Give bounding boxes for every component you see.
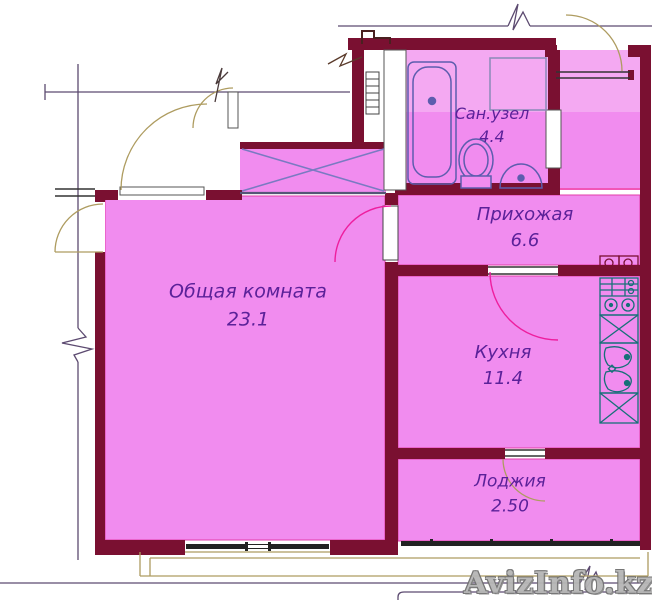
wall-living-bottom-right-pier (330, 540, 398, 555)
bathroom-name: Сан.узел (455, 104, 530, 123)
hallway-area: 6.6 (477, 228, 573, 254)
living-room-area: 23.1 (169, 306, 327, 334)
loggia-door-threshold (505, 450, 545, 456)
hallway-label: Прихожая 6.6 (477, 202, 573, 254)
wall-center-lower (385, 262, 398, 540)
break-mark-stair-door (215, 68, 228, 102)
wall-top (348, 38, 556, 50)
loggia-window (401, 541, 640, 546)
door-leaf-bathroom (546, 110, 561, 168)
door-arc-stair-small (193, 88, 233, 128)
basin-faucet-dot (518, 175, 524, 181)
duct-column (384, 50, 406, 190)
watermark-text: AvizInfo.kz (464, 566, 652, 600)
door-leaf-living-top (120, 187, 204, 195)
wall-kitchen-loggia-right (545, 448, 640, 459)
loggia-area: 2.50 (474, 494, 546, 519)
break-mark-left (62, 328, 92, 362)
vent-box-top-wall (240, 142, 386, 149)
bathroom-area: 4.4 (455, 125, 530, 148)
kitchen-label: Кухня 11.4 (475, 340, 532, 392)
wall-duct-left (352, 47, 364, 146)
living-room-fill (105, 196, 385, 540)
wall-center-upper (385, 193, 398, 205)
wall-kitchen-loggia-left (398, 448, 505, 459)
wall-hall-kitchen-left (392, 265, 488, 276)
hallway-name: Прихожая (477, 204, 573, 225)
bathtub-faucet-dot (429, 98, 436, 105)
wall-bathroom-right-upper (548, 50, 560, 112)
kitchen-door-threshold (488, 267, 558, 274)
opening-living-left (95, 202, 105, 252)
kitchen-name: Кухня (475, 342, 532, 363)
kitchen-area: 11.4 (475, 366, 532, 392)
bathroom-label: Сан.узел 4.4 (455, 102, 530, 148)
living-room-name: Общая комната (169, 280, 327, 302)
door-leaf-living-hall (383, 206, 398, 260)
wall-bathroom-right-lower (548, 168, 560, 190)
floor-plan-image: Общая комната 23.1 Прихожая 6.6 Сан.узел… (0, 0, 652, 600)
door-leaf-stair-area (228, 92, 238, 128)
break-mark-top (508, 4, 530, 30)
living-room-label: Общая комната 23.1 (169, 278, 327, 333)
loggia-name: Лоджия (474, 471, 546, 491)
wall-right (640, 45, 651, 550)
loggia-label: Лоджия 2.50 (474, 469, 546, 518)
left-wall-stub (55, 189, 95, 196)
